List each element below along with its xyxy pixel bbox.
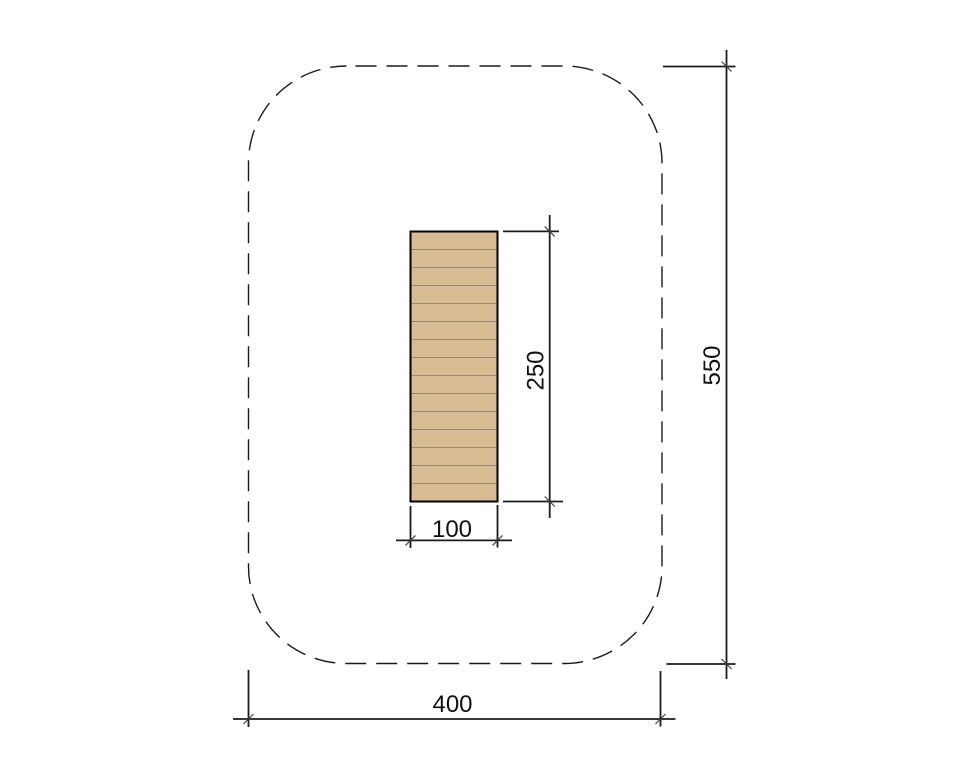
svg-text:100: 100 bbox=[432, 516, 472, 543]
svg-text:550: 550 bbox=[699, 345, 726, 385]
svg-text:250: 250 bbox=[523, 350, 550, 390]
svg-text:400: 400 bbox=[432, 691, 472, 718]
